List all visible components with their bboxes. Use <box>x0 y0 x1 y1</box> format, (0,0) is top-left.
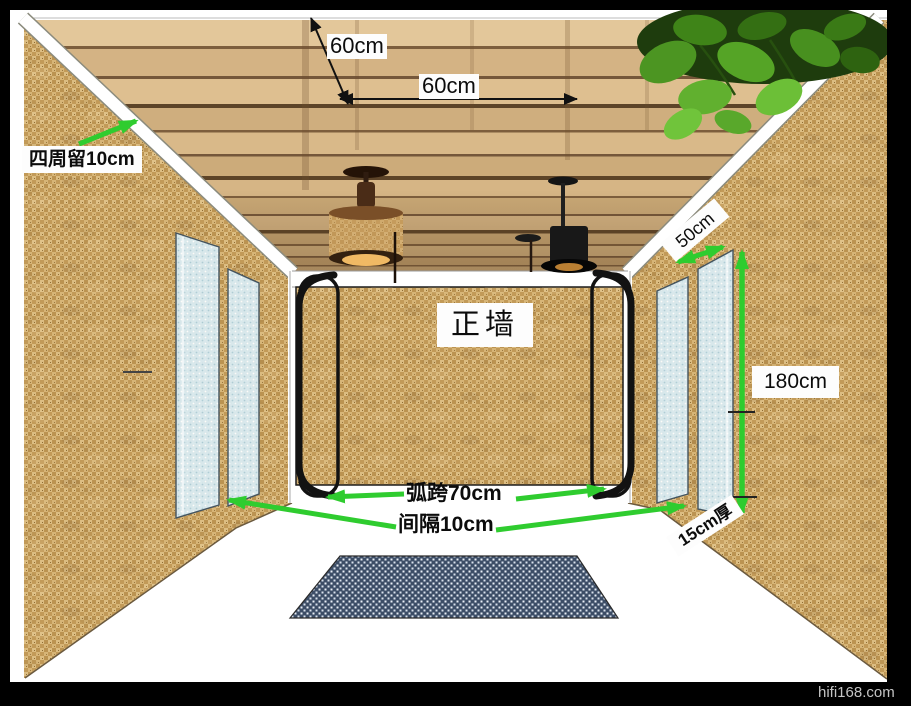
label-perimeter-gap: 四周留10cm <box>22 146 142 173</box>
watermark: hifi168.com <box>818 684 895 701</box>
label-arc-span: 弧跨70cm <box>406 482 502 506</box>
label-panel-height: 180cm <box>752 366 839 398</box>
label-panel-gap: 间隔10cm <box>398 513 494 537</box>
arc-span-arrow-left <box>328 494 404 497</box>
room-photo: 60cm 60cm 四周留10cm 50cm 180cm 正墙 弧跨70cm 间… <box>10 10 887 682</box>
label-front-wall: 正墙 <box>437 303 533 347</box>
right-panel-1 <box>657 277 688 503</box>
floor-mat <box>290 556 618 618</box>
label-joist-width-spacing: 60cm <box>419 74 479 99</box>
left-panel-2 <box>228 269 259 506</box>
scene: 60cm 60cm 四周留10cm 50cm 180cm 正墙 弧跨70cm 间… <box>10 10 887 682</box>
diagram-canvas: 60cm 60cm 四周留10cm 50cm 180cm 正墙 弧跨70cm 间… <box>0 0 911 706</box>
label-joist-depth-spacing: 60cm <box>327 34 387 59</box>
